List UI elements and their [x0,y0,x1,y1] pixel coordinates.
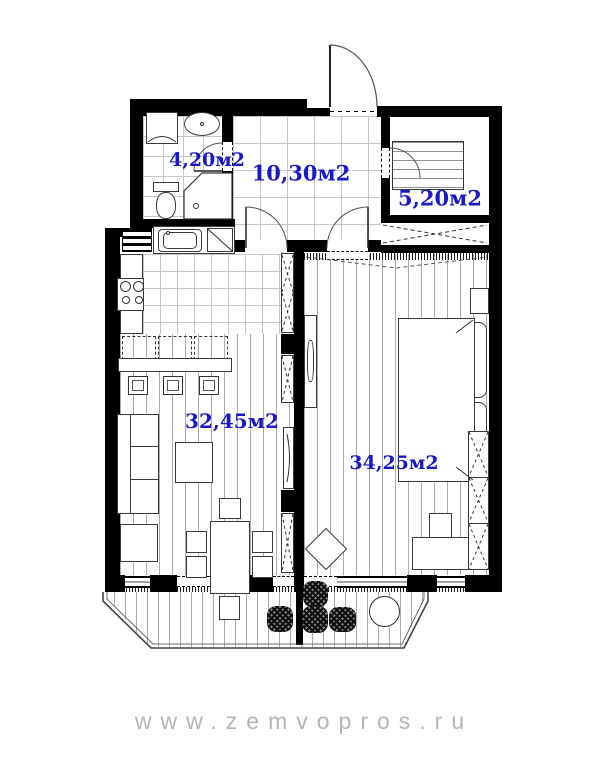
wall-partition [294,252,304,592]
wall-shaft-bottom [381,245,489,253]
partition-pier-a [281,334,304,354]
room-label-hallway: 10,30м2 [252,161,351,186]
stove-burner-2 [133,281,144,292]
watermark: www.zemvopros.ru [0,708,608,735]
washing-machine [146,112,178,144]
plant-2 [267,606,293,632]
wall-top-right [377,106,502,117]
wall-bathroom-left [130,99,143,229]
balcony-round-table [369,596,400,627]
room-label-bathroom: 4,20м2 [169,149,245,171]
dining-table [210,521,250,594]
bedroom-wardrobe [468,431,489,570]
kitchen-sink-tap [166,231,170,235]
stove-burner-1 [120,281,131,292]
sofa-cushion-line-1 [131,446,158,447]
living-wardrobe-1 [281,253,294,333]
media-cabinet [120,524,158,562]
wall-right [489,106,502,592]
bar-cabinet-dashed-1 [122,336,156,360]
living-wardrobe-3 [281,513,294,573]
bedroom-entry-sill [327,251,368,260]
room-label-closet-room: 5,20м2 [398,186,482,211]
partition-pier-b [281,490,304,512]
bar-stool-1 [128,376,148,395]
bar-stool-3 [199,376,219,395]
wall-hall-bottom-c [368,240,381,252]
bedroom-window-small [437,576,465,588]
living-window-small [125,576,150,588]
dining-chair-left-1 [186,531,207,553]
kitchen-radiator [122,228,152,252]
nightstand-top [470,288,489,314]
wall-closetroom-left-a [381,106,390,148]
wall-bathroom-right-a [222,116,233,142]
sofa-back-line [130,414,131,514]
dining-chair-right-2 [252,556,273,578]
toilet-bowl [156,192,176,219]
stove-burner-3 [122,296,130,304]
room-label-bedroom: 34,25м2 [349,452,438,474]
bar-counter [118,358,232,372]
room-label-kitchen-living: 32,45м2 [185,409,279,433]
bar-cabinet-dashed-3 [194,336,228,360]
coffee-table [175,442,213,483]
bedroom-window-large [337,576,407,588]
tv-living [283,427,294,489]
wall-bathroom-right-b [222,171,233,219]
wall-top-doorstrip [307,108,330,116]
living-wardrobe-2 [281,355,294,403]
sofa [117,414,159,514]
desk [412,537,469,570]
wall-bottom-a [105,575,125,592]
stove-burner-4 [135,296,143,304]
closetroom-door-gap [381,148,390,178]
bar-cabinet-dashed-2 [158,336,192,360]
toilet-tank [153,182,179,192]
living-balcony-door [273,576,294,587]
vent-shaft [381,223,489,245]
wall-bottom-d [407,575,437,592]
wall-shaft-top [381,215,489,223]
dining-chair-right-1 [252,531,273,553]
headboard-top [474,322,487,398]
plant-4 [329,607,356,632]
wardrobe-shelf-1 [468,477,489,478]
entrance-door-gap [330,107,377,116]
fridge [207,228,233,252]
tv-bedroom-screen [307,340,314,382]
wall-bottom-e [465,575,502,592]
closet-unit [392,141,464,190]
dining-chair-bottom [219,596,240,620]
wardrobe-shelf-2 [468,523,489,524]
bar-stool-2 [163,376,183,395]
plant-3 [302,606,328,633]
dining-chair-left-2 [186,556,207,578]
wall-hall-bottom-b [287,240,327,252]
plant-1 [303,581,328,607]
wall-bottom-b [150,575,177,592]
dining-chair-top [219,498,241,519]
kitchen-floor [143,254,282,334]
entrance-door-arc [330,45,377,107]
sofa-cushion-line-2 [131,479,158,480]
bath-sink-drain [200,122,204,126]
floor-plan-page: { "plan_title": "apartment-floor-plan", … [0,0,608,762]
desk-chair [429,513,452,538]
